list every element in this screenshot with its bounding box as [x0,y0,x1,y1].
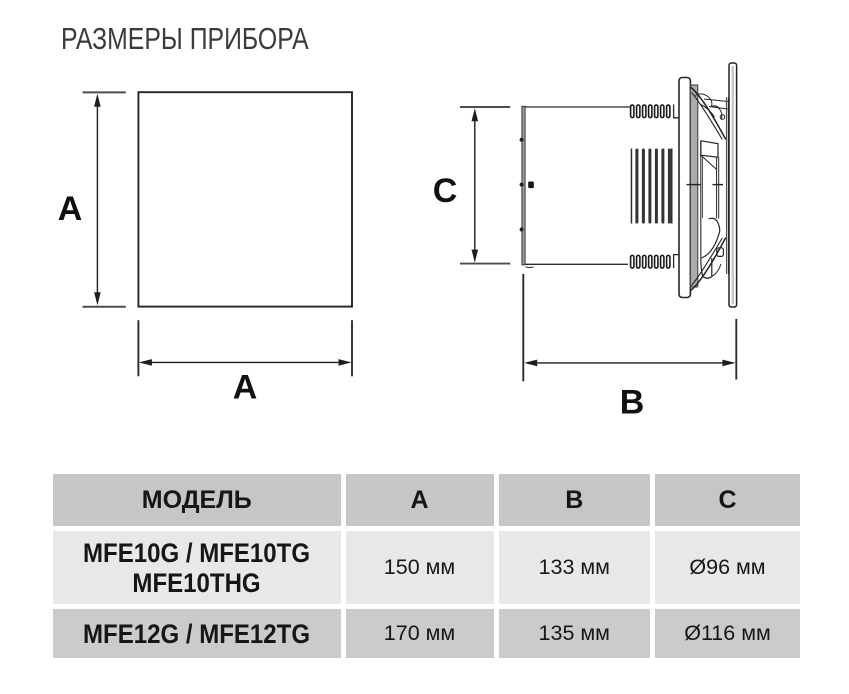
svg-text:A: A [58,190,83,228]
svg-text:A: A [233,369,258,407]
svg-text:B: B [620,384,645,422]
svg-text:C: C [433,172,458,210]
